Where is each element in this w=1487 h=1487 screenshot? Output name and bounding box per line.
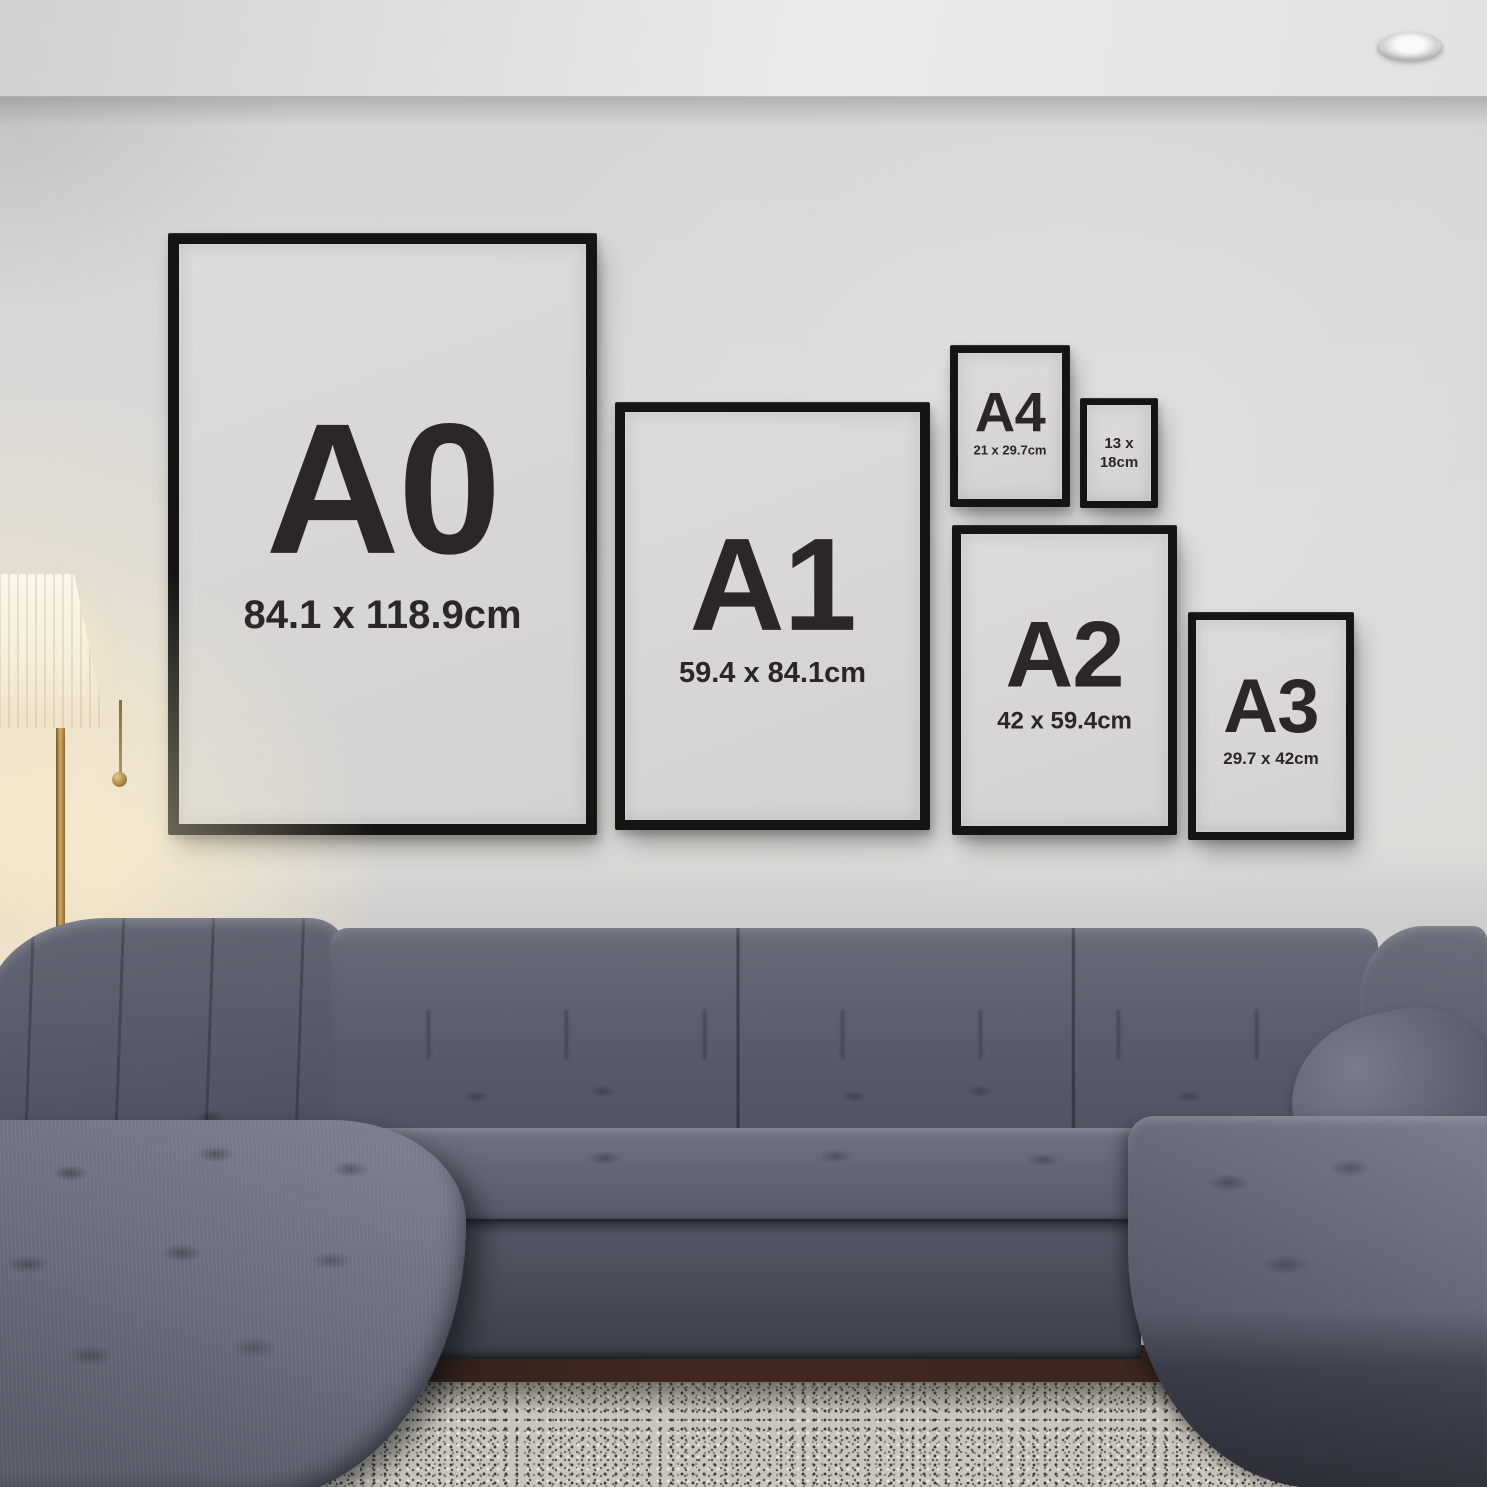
sofa-base-panel [415, 1219, 1141, 1359]
sofa-left-chaise [0, 1120, 466, 1487]
sofa-right-chaise [1128, 1116, 1487, 1487]
living-room-scene: A0 84.1 x 118.9cm A1 59.4 x 84.1cm A4 21… [0, 0, 1487, 1487]
sectional-sofa [0, 0, 1487, 1487]
